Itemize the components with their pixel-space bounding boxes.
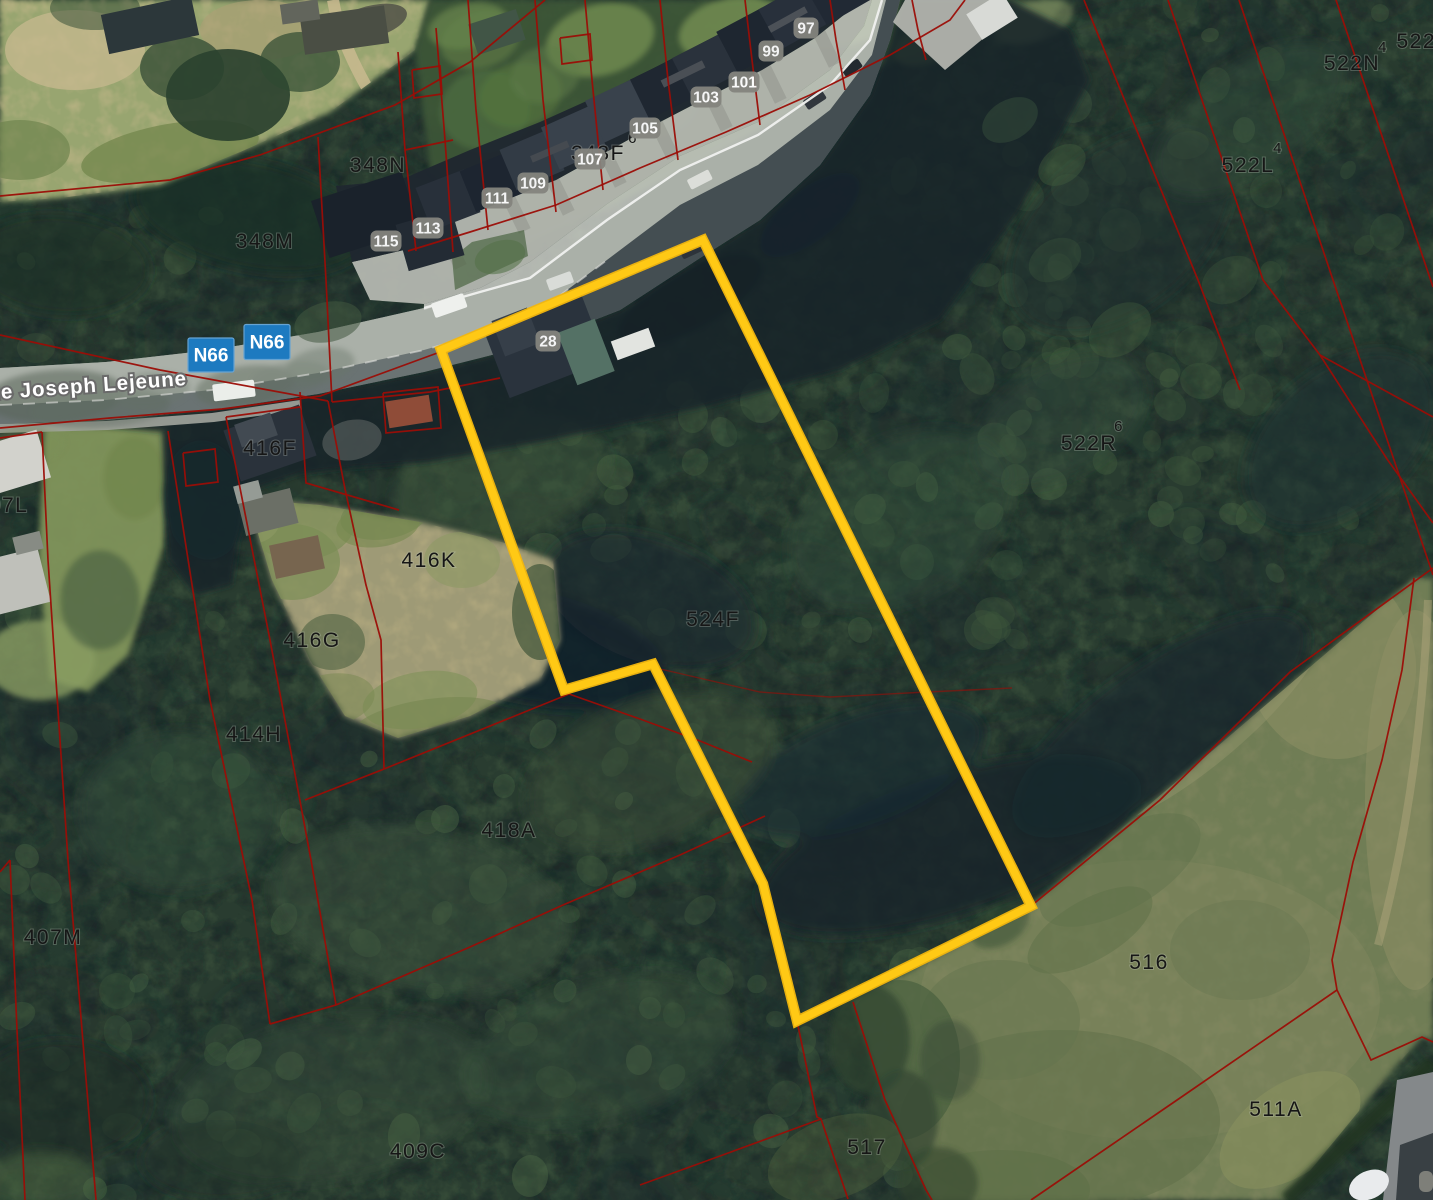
svg-text:407L: 407L: [0, 494, 28, 517]
svg-text:348M: 348M: [236, 230, 295, 253]
svg-text:409C: 409C: [390, 1140, 446, 1163]
svg-text:348N: 348N: [350, 154, 406, 177]
svg-text:N66: N66: [250, 333, 285, 354]
svg-text:115: 115: [373, 234, 398, 251]
svg-text:109: 109: [520, 176, 546, 193]
svg-text:522N: 522N: [1324, 52, 1380, 75]
svg-text:522V: 522V: [1396, 30, 1433, 53]
svg-text:N66: N66: [194, 346, 229, 367]
svg-text:28: 28: [539, 334, 557, 351]
svg-text:416G: 416G: [283, 629, 340, 652]
svg-text:99: 99: [762, 44, 780, 61]
svg-text:105: 105: [632, 121, 658, 138]
svg-text:111: 111: [485, 191, 510, 208]
svg-text:511A: 511A: [1249, 1098, 1303, 1121]
svg-text:418A: 418A: [481, 819, 536, 842]
svg-text:4: 4: [1378, 39, 1388, 56]
svg-text:407M: 407M: [24, 926, 83, 949]
svg-text:517: 517: [847, 1136, 887, 1159]
svg-text:516: 516: [1129, 951, 1169, 974]
svg-text:97: 97: [797, 21, 814, 38]
svg-text:6: 6: [1114, 418, 1124, 435]
svg-text:416K: 416K: [401, 549, 456, 572]
svg-text:522R: 522R: [1061, 432, 1117, 455]
svg-text:416F: 416F: [243, 437, 297, 460]
svg-text:113: 113: [415, 221, 440, 238]
svg-text:103: 103: [693, 90, 719, 107]
svg-text:414H: 414H: [226, 723, 282, 746]
svg-text:4: 4: [1273, 140, 1283, 157]
svg-text:101: 101: [731, 75, 757, 92]
svg-text:522L: 522L: [1222, 154, 1275, 177]
svg-text:107: 107: [577, 152, 603, 169]
svg-text:524F: 524F: [686, 608, 740, 631]
